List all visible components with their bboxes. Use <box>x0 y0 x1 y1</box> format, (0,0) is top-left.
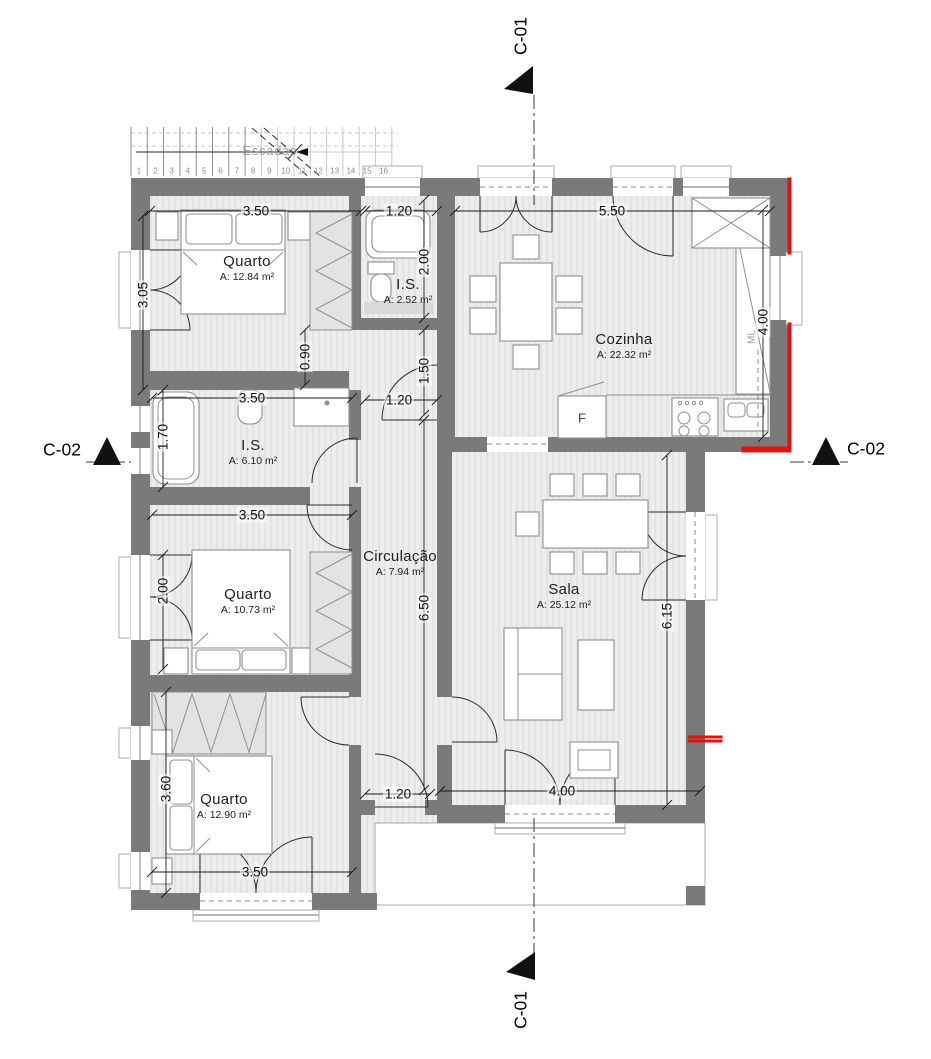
dimension-label: 4.00 <box>547 784 577 799</box>
stair-number: 8 <box>251 167 255 176</box>
terrace <box>375 823 705 905</box>
section-triangle-c01-top <box>504 66 533 94</box>
section-label-c02-left: C-02 <box>43 440 81 461</box>
dimension-label: 6.50 <box>417 593 432 623</box>
stair-number: 13 <box>330 167 339 176</box>
stair-number: 12 <box>314 167 323 176</box>
floor-plan: QuartoA: 12.84 m²I.S.A: 2.52 m²CozinhaA:… <box>0 0 931 1059</box>
dimension-label: 4.00 <box>756 307 771 337</box>
dimension-label: 5.50 <box>597 204 627 219</box>
tv-stand <box>570 742 618 778</box>
section-label-c01-top: C-01 <box>511 17 532 55</box>
stair-number: 10 <box>281 167 290 176</box>
section-label-c02-right: C-02 <box>847 439 885 460</box>
dimension-label: 6.15 <box>660 601 675 631</box>
section-label-c01-bottom: C-01 <box>511 991 532 1029</box>
room-label: QuartoA: 10.73 m² <box>221 586 275 616</box>
dimension-label: 3.60 <box>159 774 174 804</box>
dimension-label: 1.50 <box>417 356 432 386</box>
dimension-label: 3.50 <box>240 865 270 880</box>
stair-number: 7 <box>235 167 239 176</box>
stair-number: 16 <box>379 167 388 176</box>
dimension-label: 3.50 <box>237 508 267 523</box>
stair-number: 14 <box>346 167 355 176</box>
terrace-pillar <box>686 886 705 905</box>
room-label: I.S.A: 6.10 m² <box>229 437 277 467</box>
room-label: CozinhaA: 22.32 m² <box>595 331 652 361</box>
stair-number: 5 <box>202 167 206 176</box>
dimension-label: 1.20 <box>383 787 413 802</box>
room-label: QuartoA: 12.90 m² <box>197 791 251 821</box>
dimension-label: 3.50 <box>237 391 267 406</box>
section-triangle-c01-bottom <box>506 952 535 980</box>
dimension-label: 3.50 <box>241 204 271 219</box>
section-triangle-c02-right <box>812 437 840 465</box>
stair-number: 3 <box>169 167 173 176</box>
dimension-label: 1.20 <box>384 393 414 408</box>
sala-sofa <box>504 628 614 720</box>
washbasin-counter <box>294 388 349 426</box>
room-label: CirculaçãoA: 7.94 m² <box>363 548 437 578</box>
room-label: SalaA: 25.12 m² <box>537 581 591 611</box>
fridge-label: F <box>578 411 586 426</box>
floorplan-drawing <box>0 0 931 1059</box>
wardrobe-quarto2 <box>310 552 352 674</box>
stair-number: 9 <box>267 167 271 176</box>
section-triangle-c02-left <box>93 437 121 465</box>
stair-number: 6 <box>218 167 222 176</box>
stairs-label: Escadas <box>243 144 298 158</box>
stair-number: 15 <box>363 167 372 176</box>
dimension-label: 2.00 <box>156 576 171 606</box>
dimension-label: 2.00 <box>417 247 432 277</box>
stair-number: 1 <box>137 167 141 176</box>
room-label: QuartoA: 12.84 m² <box>220 253 274 283</box>
dimension-label: 3.05 <box>136 280 151 310</box>
stair-number: 2 <box>153 167 157 176</box>
dimension-label: 0.90 <box>298 342 313 372</box>
stair-number: 4 <box>186 167 190 176</box>
stair-number: 11 <box>298 167 306 176</box>
dimension-label: 1.70 <box>156 422 171 452</box>
sink <box>724 399 768 431</box>
washer-label: ML <box>747 330 758 344</box>
room-label: I.S.A: 2.52 m² <box>384 276 432 306</box>
dimension-label: 1.20 <box>384 204 414 219</box>
